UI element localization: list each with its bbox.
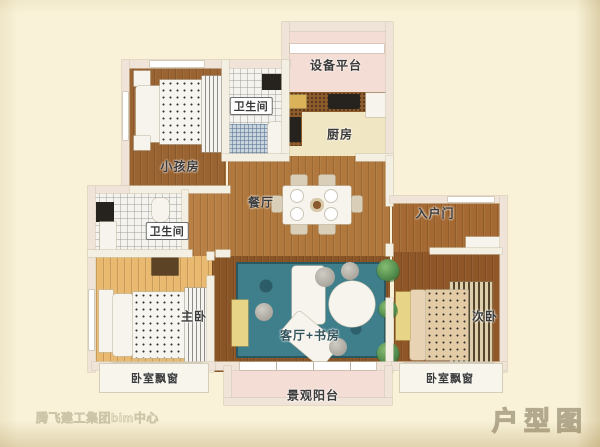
room-label-equipment-platform: 设备平台: [310, 57, 362, 74]
master-cabinet: [152, 258, 178, 275]
watermark-text: 腾飞建工集团bim中心: [36, 409, 159, 426]
wall: [386, 298, 393, 372]
wall: [118, 186, 230, 193]
washing-machine: [100, 222, 116, 250]
second-bed-headboard: [410, 290, 426, 360]
living-round-table: [329, 281, 375, 327]
dining-plate: [325, 190, 337, 202]
room-label-dining: 餐厅: [248, 194, 274, 211]
kids-nightstand: [134, 136, 150, 150]
dining-chair: [291, 223, 307, 234]
kids-bed-mattress: [160, 80, 204, 144]
floor-plan-canvas: 设备平台 卫生间 厨房 小孩房 餐厅 入户门 卫生间 主卧 客厅+书房 次卧 景…: [0, 0, 600, 447]
wall: [222, 60, 229, 160]
dining-plate: [325, 208, 337, 220]
room-label-bathroom-left: 卫生间: [146, 222, 189, 240]
room-label-kitchen: 厨房: [327, 126, 353, 143]
wall: [430, 248, 502, 254]
kitchen-oven: [287, 117, 301, 142]
wall: [282, 60, 289, 158]
room-label-master-bedroom: 主卧: [181, 308, 207, 325]
wall: [222, 154, 289, 161]
kids-room-window: [150, 61, 204, 67]
shower-area: [228, 124, 270, 156]
kitchen-cabinet-yellow: [289, 95, 306, 108]
kids-bed-headboard: [136, 86, 162, 142]
wall: [207, 252, 214, 260]
kitchen-fridge: [366, 93, 386, 117]
pouf: [341, 262, 359, 280]
room-label-living-study: 客厅+书房: [280, 327, 340, 344]
room-label-kids-room: 小孩房: [160, 158, 199, 175]
pouf: [315, 267, 335, 287]
wall: [88, 250, 192, 257]
plant: [377, 259, 399, 281]
label-bay-window-right: 卧室飘窗: [426, 370, 474, 386]
wall: [500, 196, 507, 372]
balcony-sliding-door: [240, 362, 376, 370]
living-desk: [232, 300, 248, 346]
master-bed-headboard: [113, 294, 133, 356]
toilet: [152, 198, 169, 222]
dining-chair: [352, 196, 362, 212]
master-bed-mattress: [133, 292, 185, 358]
kids-room-side-window: [123, 92, 128, 140]
kids-bed-rug: [202, 76, 222, 152]
dining-plate: [291, 208, 303, 220]
dining-chair: [319, 223, 335, 234]
platform-railing: [290, 44, 384, 53]
wall: [122, 60, 290, 68]
plan-title: 户型图: [492, 401, 588, 438]
bathroom-top-vanity: [262, 74, 282, 90]
master-window: [89, 290, 94, 350]
dining-centerpiece: [310, 198, 324, 212]
room-label-bathroom-top: 卫生间: [230, 97, 273, 115]
kitchen-cooktop: [328, 94, 360, 109]
wall: [282, 22, 390, 31]
kids-wardrobe: [134, 71, 150, 86]
entrance-shoe-cabinet: [466, 237, 502, 248]
dining-chair: [291, 175, 307, 186]
label-bay-window-left: 卧室飘窗: [131, 370, 179, 386]
master-window-bench: [99, 290, 113, 352]
room-label-entrance: 入户门: [415, 205, 454, 222]
bathroom-left-cabinet: [96, 202, 114, 222]
wall: [216, 250, 230, 257]
room-label-balcony: 景观阳台: [287, 387, 339, 404]
wall: [386, 244, 393, 256]
dining-plate: [291, 190, 303, 202]
second-bed-mattress: [426, 290, 468, 360]
pouf: [255, 303, 273, 321]
room-label-second-bedroom: 次卧: [472, 308, 498, 325]
second-desk: [396, 292, 410, 340]
dining-chair: [319, 175, 335, 186]
entrance-door: [448, 197, 494, 202]
wall: [207, 276, 214, 372]
